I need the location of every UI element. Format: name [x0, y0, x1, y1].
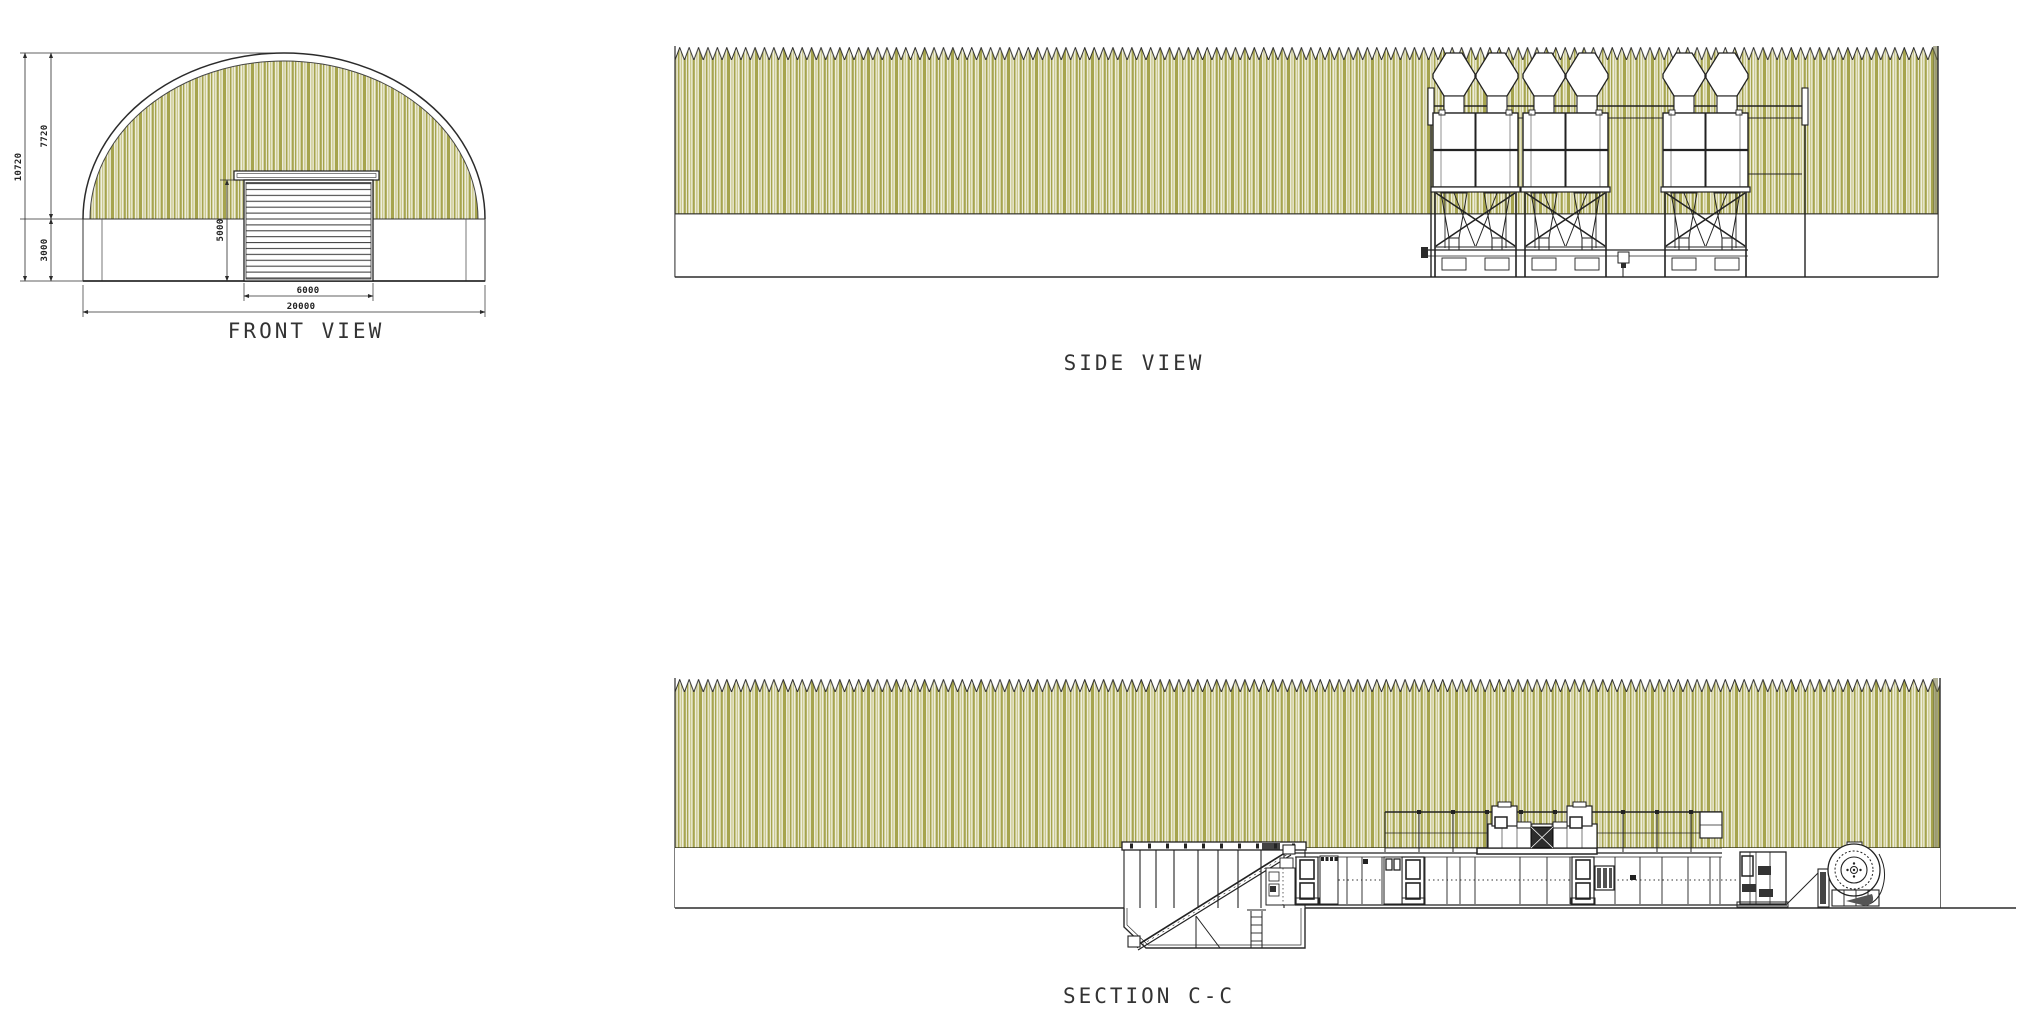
- section-cladding: [675, 678, 1940, 848]
- dim-text-overall-width: 20000: [287, 302, 316, 312]
- drawing-sheet: 10720 7720 3000 5000 6000 20000 FRONT VI…: [0, 0, 2041, 1019]
- pump-box: [1618, 252, 1629, 263]
- dim-text-arch-rise: 7720: [40, 125, 50, 148]
- front-view: 10720 7720 3000 5000 6000 20000 FRONT VI…: [14, 53, 485, 343]
- end-machine-hatch: [1758, 866, 1771, 875]
- tower-window: [1570, 817, 1582, 828]
- side-edge-shadow: [1933, 46, 1938, 214]
- side-view-label: SIDE VIEW: [1064, 351, 1205, 375]
- window-cabinet: [1571, 857, 1595, 905]
- drawing-canvas: 10720 7720 3000 5000 6000 20000 FRONT VI…: [0, 0, 2041, 1019]
- door-slats: [246, 183, 371, 280]
- pump-foot: [1621, 263, 1626, 268]
- section-edge-shadow: [1933, 678, 1938, 848]
- section-view-label: SECTION C-C: [1063, 984, 1235, 1008]
- section-view: SECTION C-C: [675, 678, 2016, 1008]
- small-fitting: [1630, 875, 1636, 880]
- small-fitting: [1363, 859, 1368, 864]
- side-base-wall: [675, 214, 1938, 277]
- end-machine-hatch: [1742, 884, 1756, 892]
- fan-inlet-hatch: [1820, 872, 1826, 904]
- head-platform: [1266, 868, 1295, 905]
- grid-box: [1595, 866, 1614, 890]
- side-view: SIDE VIEW: [675, 46, 1938, 375]
- dim-text-wall-height: 3000: [40, 239, 50, 262]
- door-header: [234, 171, 379, 180]
- pit-hatch-block: [1262, 843, 1280, 850]
- twin-window-cabinet: [1384, 857, 1402, 904]
- window-cabinet: [1401, 857, 1425, 905]
- belt-head-pulley: [1283, 845, 1295, 854]
- front-view-label: FRONT VIEW: [228, 319, 384, 343]
- tower-window: [1495, 817, 1507, 828]
- post-cap: [1802, 88, 1808, 125]
- hatch-cabinet: [1320, 856, 1338, 904]
- machine-shelf: [1517, 822, 1531, 828]
- machine-shelf: [1553, 822, 1567, 828]
- machine-platform: [1477, 848, 1597, 854]
- window-cabinet: [1295, 857, 1319, 905]
- section-cladding-top-edge: [675, 678, 1940, 692]
- dim-text-door-height: 5000: [216, 219, 226, 242]
- roller-door: [234, 171, 379, 281]
- end-machine-hatch: [1759, 889, 1773, 897]
- dim-text-total-height: 10720: [14, 153, 24, 182]
- tower-cap: [1498, 802, 1511, 807]
- dim-text-door-width: 6000: [297, 286, 320, 296]
- tower-cap: [1573, 802, 1586, 807]
- belt-foot-roller: [1128, 936, 1140, 947]
- side-cladding-top-edge: [675, 46, 1938, 60]
- conveyor-drive-motor: [1421, 247, 1428, 258]
